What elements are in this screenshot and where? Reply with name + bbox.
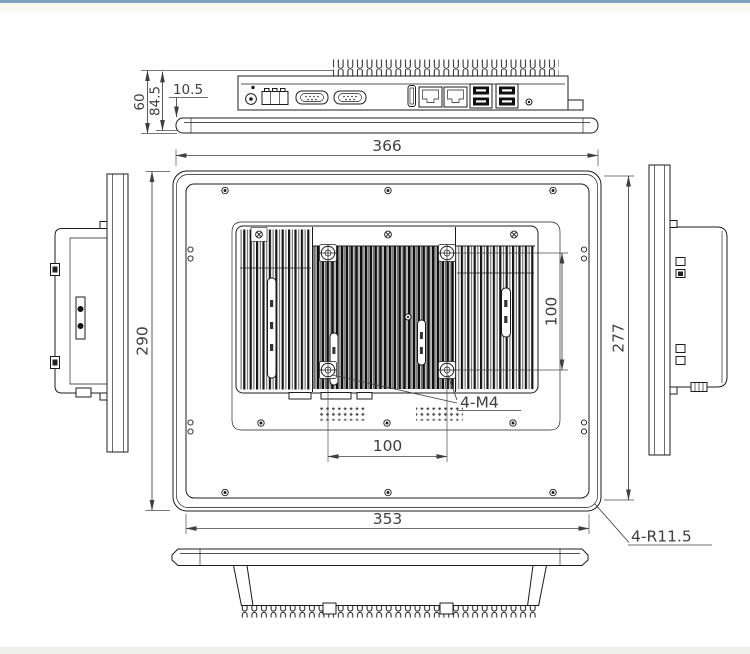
dim-vesa-horizontal: 100 xyxy=(373,437,403,455)
vesa-hole xyxy=(319,361,337,379)
top-accent-bar xyxy=(0,0,750,3)
dim-vesa-vertical: 100 xyxy=(543,297,561,327)
label-mount-holes: 4-M4 xyxy=(460,394,499,412)
dim-panel-thickness: 10.5 xyxy=(173,82,203,98)
top-strip xyxy=(0,3,750,12)
bottom-glass-profile xyxy=(172,549,588,566)
drawing-page: 60 84.5 10.5 xyxy=(0,0,750,654)
vesa-hole xyxy=(438,361,456,379)
front-glass-edge xyxy=(176,118,598,133)
left-bracket xyxy=(76,297,85,339)
label-corner-radius: 4-R11.5 xyxy=(631,528,692,546)
bottom-view xyxy=(172,549,588,618)
bottom-strip xyxy=(0,647,750,654)
heatsink xyxy=(236,226,538,399)
right-side-view xyxy=(649,165,727,455)
side-step xyxy=(568,100,583,110)
bottom-fins xyxy=(241,605,539,618)
left-glass-profile xyxy=(107,174,128,452)
rear-view: 366 290 277 100 100 353 4-M4 xyxy=(134,137,713,546)
dim-bottom-width: 353 xyxy=(373,510,403,528)
heatsink-fins-top xyxy=(333,60,559,77)
vesa-hole xyxy=(319,244,337,262)
speaker-grille-right xyxy=(416,408,463,421)
left-side-view xyxy=(51,174,129,452)
power-led xyxy=(251,86,254,89)
top-view: 60 84.5 10.5 xyxy=(132,60,598,134)
right-glass-profile xyxy=(649,165,670,455)
dim-right-height: 277 xyxy=(610,323,628,353)
dim-left-height: 290 xyxy=(134,326,152,356)
dim-top-width: 366 xyxy=(372,137,402,155)
vesa-hole xyxy=(438,244,456,262)
dim-depth-rear: 84.5 xyxy=(148,86,164,116)
speaker-grille-left xyxy=(319,408,366,421)
dim-depth-total: 60 xyxy=(132,93,148,110)
bottom-housing-walls xyxy=(234,566,547,607)
